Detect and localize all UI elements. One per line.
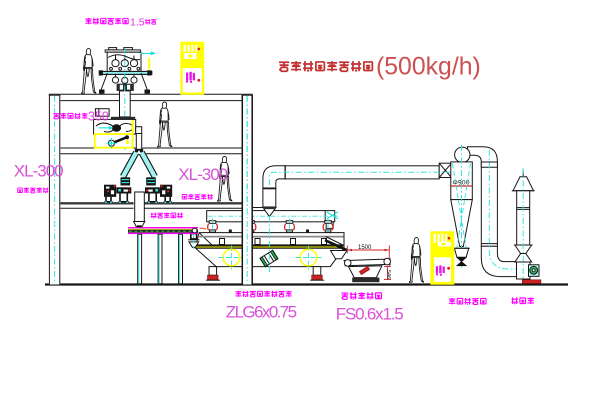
svg-text:(500kg/h): (500kg/h) xyxy=(376,54,481,81)
svg-text:1.5: 1.5 xyxy=(130,16,145,28)
svg-text:FS0.6x1.5: FS0.6x1.5 xyxy=(336,305,403,324)
svg-text:350: 350 xyxy=(88,110,109,124)
svg-text:ZLG6x0.75: ZLG6x0.75 xyxy=(226,303,297,322)
svg-text:XL-300: XL-300 xyxy=(178,165,227,184)
svg-text:546: 546 xyxy=(385,270,391,279)
svg-text:XL-300: XL-300 xyxy=(14,162,63,181)
svg-text:1500: 1500 xyxy=(358,245,372,251)
